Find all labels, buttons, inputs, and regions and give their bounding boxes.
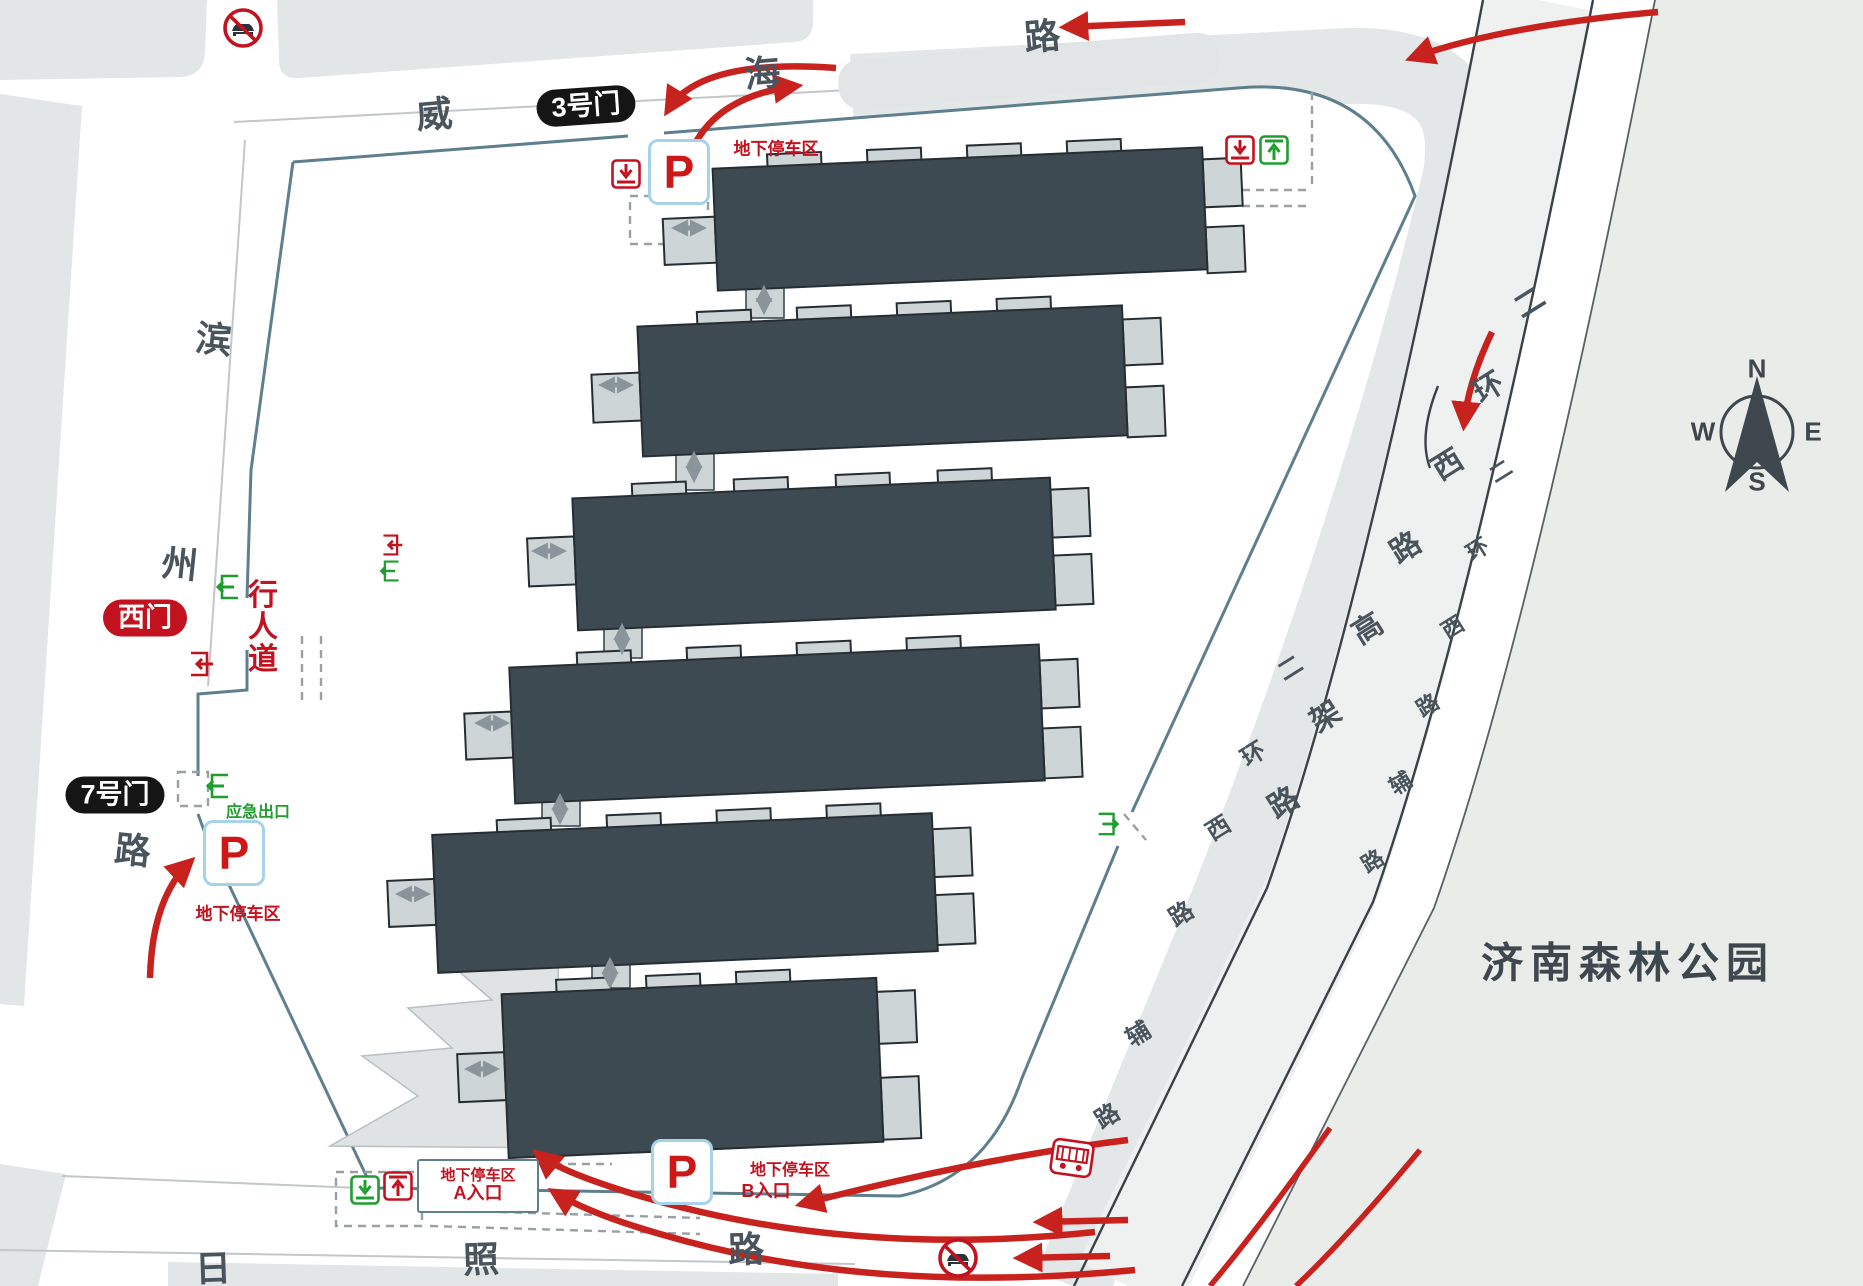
road-label-weihai-1: 威 (414, 85, 454, 140)
park-name-label: 济南森林公园 (1481, 930, 1775, 991)
emergency-exit-label: 应急出口 (226, 798, 290, 822)
door-entry-icon (380, 533, 404, 557)
underground-parking-label-a: 地下停车区 (440, 1168, 515, 1185)
car-entry-icon (611, 159, 641, 189)
road-label-binzhou-2: 州 (159, 534, 200, 589)
entrance-a-label: A入口 (454, 1184, 503, 1204)
compass-east-label: E (1804, 417, 1821, 448)
building-6 (454, 964, 921, 1160)
road-label-binzhou-3: 路 (112, 820, 153, 875)
parking-icon-west: P (203, 820, 265, 886)
entrance-b-label: B入口 (742, 1177, 791, 1203)
gate-3-badge: 3号门 (535, 84, 636, 128)
car-entry-icon (1225, 135, 1255, 165)
door-entry-icon (187, 650, 215, 678)
underground-parking-label-west: 地下停车区 (196, 900, 281, 925)
underground-parking-label-north: 地下停车区 (734, 135, 819, 160)
car-exit-up-icon (383, 1171, 413, 1201)
door-exit-icon (214, 573, 242, 601)
road-label-weihai-2: 海 (742, 44, 782, 99)
parking-symbol: P (664, 145, 695, 199)
car-entry-down-icon (350, 1175, 380, 1205)
no-car-icon (937, 1237, 979, 1279)
compass-south-label: S (1748, 467, 1765, 498)
pedestrian-path-label-3: 道 (248, 634, 278, 678)
parking-symbol: P (667, 1145, 698, 1199)
map-base-layer (0, 0, 1863, 1286)
road-label-weihai-3: 路 (1022, 7, 1062, 62)
venue-map: 威 海 路 滨 州 路 日 照 路 二 环 西 路 辅 路 二 环 西 路 高 … (0, 0, 1863, 1286)
compass-west-label: W (1691, 417, 1716, 448)
no-car-icon (222, 7, 264, 49)
road-label-binzhou-1: 滨 (193, 309, 234, 364)
compass-north-label: N (1748, 354, 1767, 385)
door-exit-icon (1095, 811, 1121, 837)
door-exit-icon (204, 772, 232, 800)
parking-icon-north: P (648, 139, 710, 205)
door-exit-icon (378, 559, 402, 583)
road-label-rizhao-2: 照 (462, 1230, 500, 1283)
entrance-a-box: 地下停车区 A入口 (417, 1159, 539, 1213)
car-exit-icon (1259, 135, 1289, 165)
gate-7-badge: 7号门 (65, 776, 164, 813)
parking-icon-south: P (651, 1139, 713, 1205)
road-label-rizhao-1: 日 (194, 1239, 232, 1286)
road-label-rizhao-3: 路 (727, 1220, 765, 1273)
west-gate-badge: 西门 (103, 599, 187, 636)
parking-symbol: P (219, 826, 250, 880)
bus-stop-icon (1048, 1136, 1097, 1180)
